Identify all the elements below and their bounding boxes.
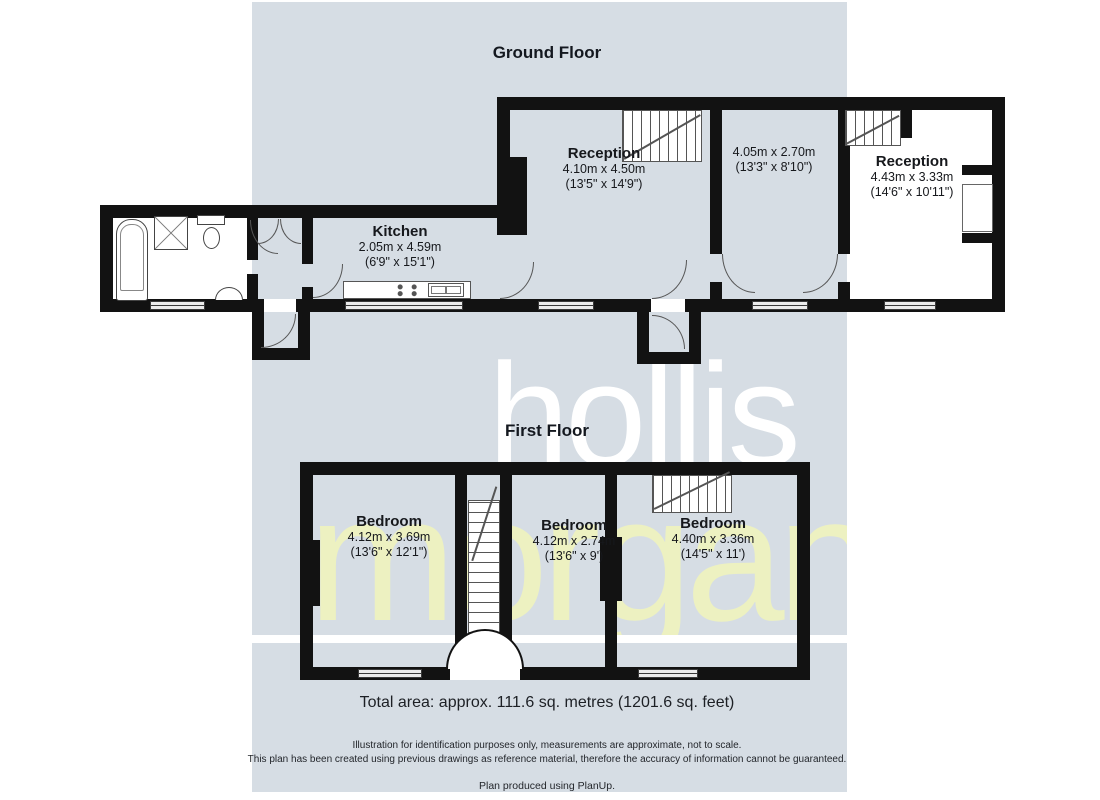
shower-icon bbox=[154, 216, 188, 250]
window bbox=[538, 301, 594, 310]
room-name: Bedroom bbox=[348, 514, 431, 530]
wall-segment bbox=[710, 110, 722, 254]
disclaimer-line-1: Illustration for identification purposes… bbox=[353, 739, 742, 753]
wall-segment bbox=[838, 282, 850, 299]
wall-segment bbox=[637, 352, 701, 364]
sofa-icon bbox=[962, 184, 993, 232]
wall-segment bbox=[302, 218, 313, 264]
toilet-icon bbox=[197, 215, 225, 225]
wall-segment bbox=[992, 97, 1005, 312]
wall-segment bbox=[710, 282, 722, 299]
window bbox=[345, 301, 463, 310]
disclaimer-line-2: This plan has been created using previou… bbox=[248, 753, 847, 767]
ground-floor-title: Ground Floor bbox=[493, 43, 602, 63]
door-opening bbox=[264, 299, 296, 312]
room-dimensions-metric: 4.05m x 2.70m bbox=[733, 145, 816, 160]
background-panel-lower bbox=[252, 643, 847, 792]
wall-segment bbox=[497, 97, 1005, 110]
window bbox=[884, 301, 936, 310]
room-dimensions-imperial: (13'3" x 8'10") bbox=[733, 160, 816, 175]
alcove-stub bbox=[962, 165, 992, 175]
room-name: Bedroom bbox=[672, 516, 755, 532]
window bbox=[752, 301, 808, 310]
alcove-stub bbox=[962, 233, 992, 243]
room-label-bedroom-1: Bedroom 4.12m x 3.69m (13'6" x 12'1") bbox=[348, 514, 431, 560]
wall-segment bbox=[900, 110, 912, 138]
window bbox=[358, 669, 422, 678]
room-label-reception-left: Reception 4.10m x 4.50m (13'5" x 14'9") bbox=[563, 146, 646, 192]
wall-segment bbox=[300, 462, 810, 475]
bathtub-icon bbox=[116, 219, 148, 301]
room-name: Reception bbox=[563, 146, 646, 162]
room-dimensions-imperial: (14'5" x 11') bbox=[672, 547, 755, 562]
room-dimensions-metric: 4.43m x 3.33m bbox=[871, 170, 954, 185]
room-label-bedroom-2: Bedroom 4.12m x 2.74m (13'6" x 9') bbox=[533, 518, 616, 564]
room-dimensions-imperial: (14'6" x 10'11") bbox=[871, 185, 954, 200]
room-dimensions-imperial: (13'6" x 12'1") bbox=[348, 545, 431, 560]
wall-segment bbox=[302, 287, 313, 299]
room-dimensions-metric: 4.40m x 3.36m bbox=[672, 532, 755, 547]
sink-icon bbox=[215, 287, 243, 300]
wall-segment bbox=[100, 205, 113, 312]
kitchen-sink-icon bbox=[428, 283, 464, 297]
room-dimensions-imperial: (13'6" x 9') bbox=[533, 549, 616, 564]
room-label-bedroom-3: Bedroom 4.40m x 3.36m (14'5" x 11') bbox=[672, 516, 755, 562]
floorplan-page: hollis morgan Ground Floor First Floor bbox=[0, 0, 1100, 800]
room-dimensions-imperial: (6'9" x 15'1") bbox=[359, 255, 442, 270]
room-dimensions-metric: 4.10m x 4.50m bbox=[563, 162, 646, 177]
room-label-kitchen: Kitchen 2.05m x 4.59m (6'9" x 15'1") bbox=[359, 224, 442, 270]
room-name: Bedroom bbox=[533, 518, 616, 534]
wall-segment bbox=[247, 274, 258, 299]
room-dimensions-metric: 4.12m x 2.74m bbox=[533, 534, 616, 549]
door-opening bbox=[651, 299, 685, 312]
room-name: Reception bbox=[871, 154, 954, 170]
room-label-middle-room: 4.05m x 2.70m (13'3" x 8'10") bbox=[733, 145, 816, 175]
room-dimensions-metric: 4.12m x 3.69m bbox=[348, 530, 431, 545]
room-dimensions-metric: 2.05m x 4.59m bbox=[359, 240, 442, 255]
stove-icon bbox=[394, 283, 422, 297]
wall-segment bbox=[252, 348, 310, 360]
first-floor-title: First Floor bbox=[505, 421, 589, 441]
toilet-bowl-icon bbox=[203, 227, 220, 249]
planup-credit-text: Plan produced using PlanUp. bbox=[479, 780, 615, 792]
window bbox=[638, 669, 698, 678]
room-name: Kitchen bbox=[359, 224, 442, 240]
wall-segment bbox=[797, 462, 810, 680]
window bbox=[150, 301, 205, 310]
room-dimensions-imperial: (13'5" x 14'9") bbox=[563, 177, 646, 192]
chimney-breast bbox=[302, 540, 320, 606]
chimney-breast bbox=[497, 157, 527, 235]
room-label-reception-right: Reception 4.43m x 3.33m (14'6" x 10'11") bbox=[871, 154, 954, 200]
staircase bbox=[652, 475, 732, 513]
total-area-text: Total area: approx. 111.6 sq. metres (12… bbox=[360, 694, 735, 712]
